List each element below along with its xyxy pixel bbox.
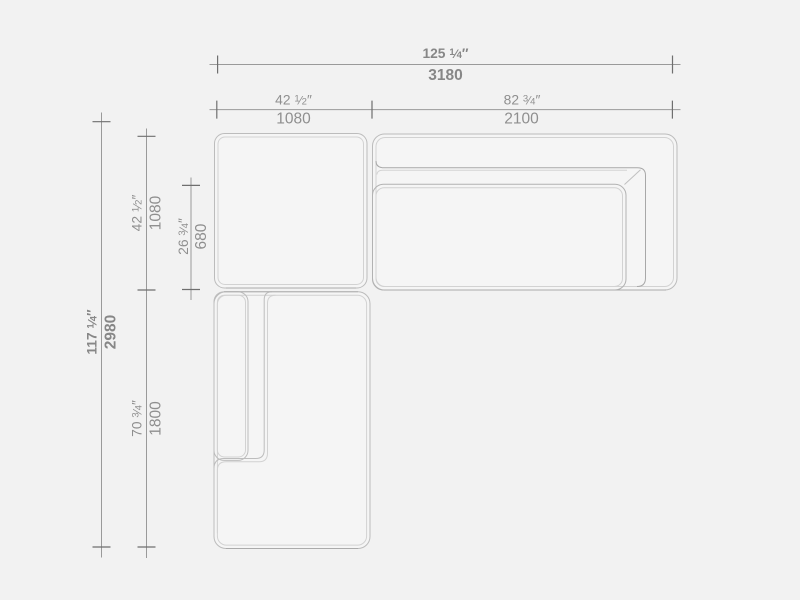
svg-text:42 1⁄2″: 42 1⁄2″	[275, 92, 312, 107]
svg-text:1800: 1800	[148, 401, 165, 436]
svg-text:2100: 2100	[504, 111, 539, 128]
svg-text:3180: 3180	[428, 67, 462, 84]
svg-text:70 3⁄4″: 70 3⁄4″	[130, 400, 145, 437]
svg-text:1080: 1080	[276, 111, 311, 128]
svg-text:117 1⁄4″: 117 1⁄4″	[85, 309, 100, 355]
svg-text:82 3⁄4″: 82 3⁄4″	[504, 92, 541, 107]
svg-text:2980: 2980	[103, 315, 120, 349]
svg-text:680: 680	[193, 223, 210, 249]
svg-text:42 1⁄2″: 42 1⁄2″	[130, 195, 145, 232]
svg-text:26 3⁄4″: 26 3⁄4″	[176, 218, 191, 255]
svg-text:1080: 1080	[148, 195, 165, 230]
svg-text:125 1⁄4″: 125 1⁄4″	[422, 46, 468, 61]
